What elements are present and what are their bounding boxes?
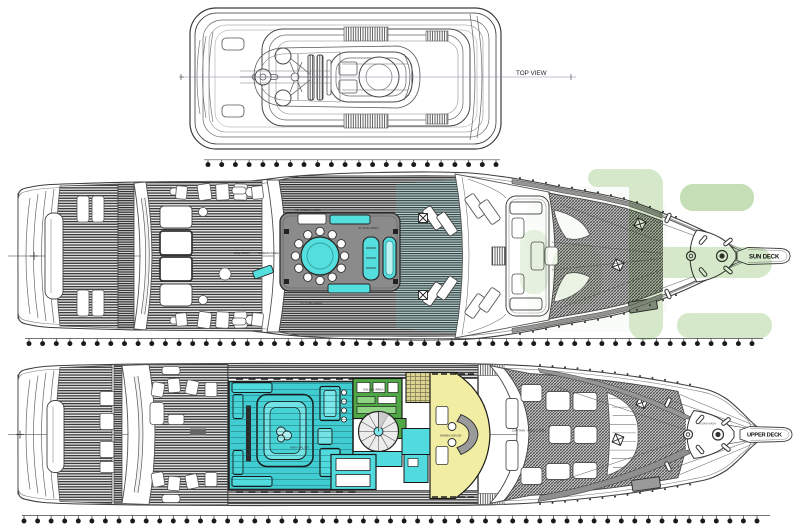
svg-text:CAPTAIN - FWELL AREA: CAPTAIN - FWELL AREA [512, 429, 546, 433]
svg-text:MAIN SALON: MAIN SALON [290, 446, 309, 450]
svg-text:UPPER DECK: UPPER DECK [747, 433, 783, 439]
svg-text:DJ ZONE AREA: DJ ZONE AREA [300, 301, 323, 305]
svg-text:GALLEY AREA: GALLEY AREA [363, 388, 383, 392]
svg-text:AC BAR AREA: AC BAR AREA [358, 226, 380, 230]
svg-text:BBQ DECK: BBQ DECK [234, 251, 251, 255]
svg-text:CHAIN WASH: CHAIN WASH [700, 423, 716, 426]
svg-text:3D CINEMA AREA: 3D CINEMA AREA [295, 208, 322, 212]
svg-text:TOP VIEW: TOP VIEW [516, 70, 547, 77]
svg-text:WHEELHOUSE: WHEELHOUSE [440, 434, 461, 438]
svg-text:CINEMA AREA: CINEMA AREA [258, 251, 280, 255]
